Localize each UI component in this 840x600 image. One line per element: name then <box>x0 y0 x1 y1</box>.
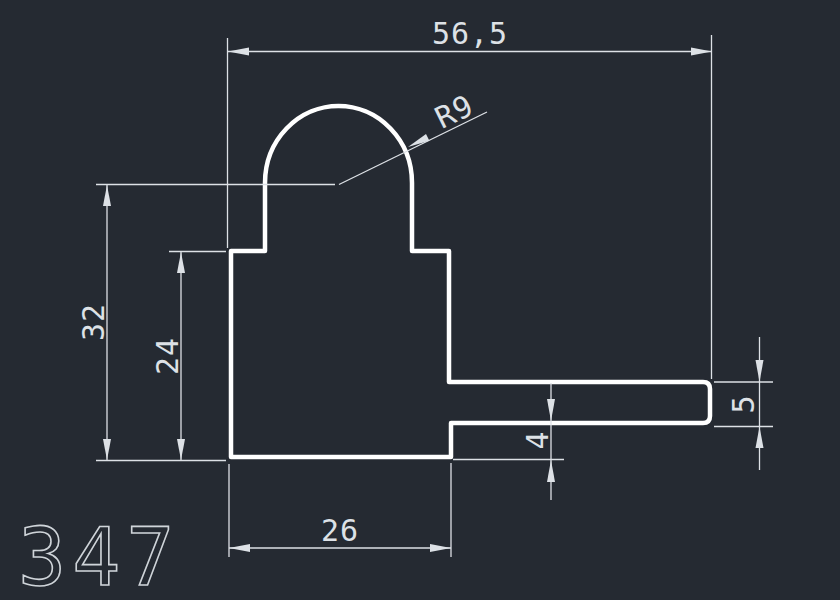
dim-label-body-height: 24 <box>150 337 185 375</box>
part-number-label: 347 <box>18 511 181 600</box>
dim-label-overall-width: 56,5 <box>432 16 508 51</box>
dim-label-body-width: 26 <box>321 513 359 548</box>
dim-label-flange-thickness: 5 <box>726 394 761 413</box>
cad-drawing-canvas: 56,5 26 32 24 4 5 R9 347 <box>0 0 840 600</box>
dim-label-overall-height: 32 <box>76 303 111 341</box>
dim-label-flange-offset: 4 <box>520 430 555 449</box>
technical-drawing: 56,5 26 32 24 4 5 R9 347 <box>0 0 840 600</box>
drawing-background <box>0 0 840 600</box>
